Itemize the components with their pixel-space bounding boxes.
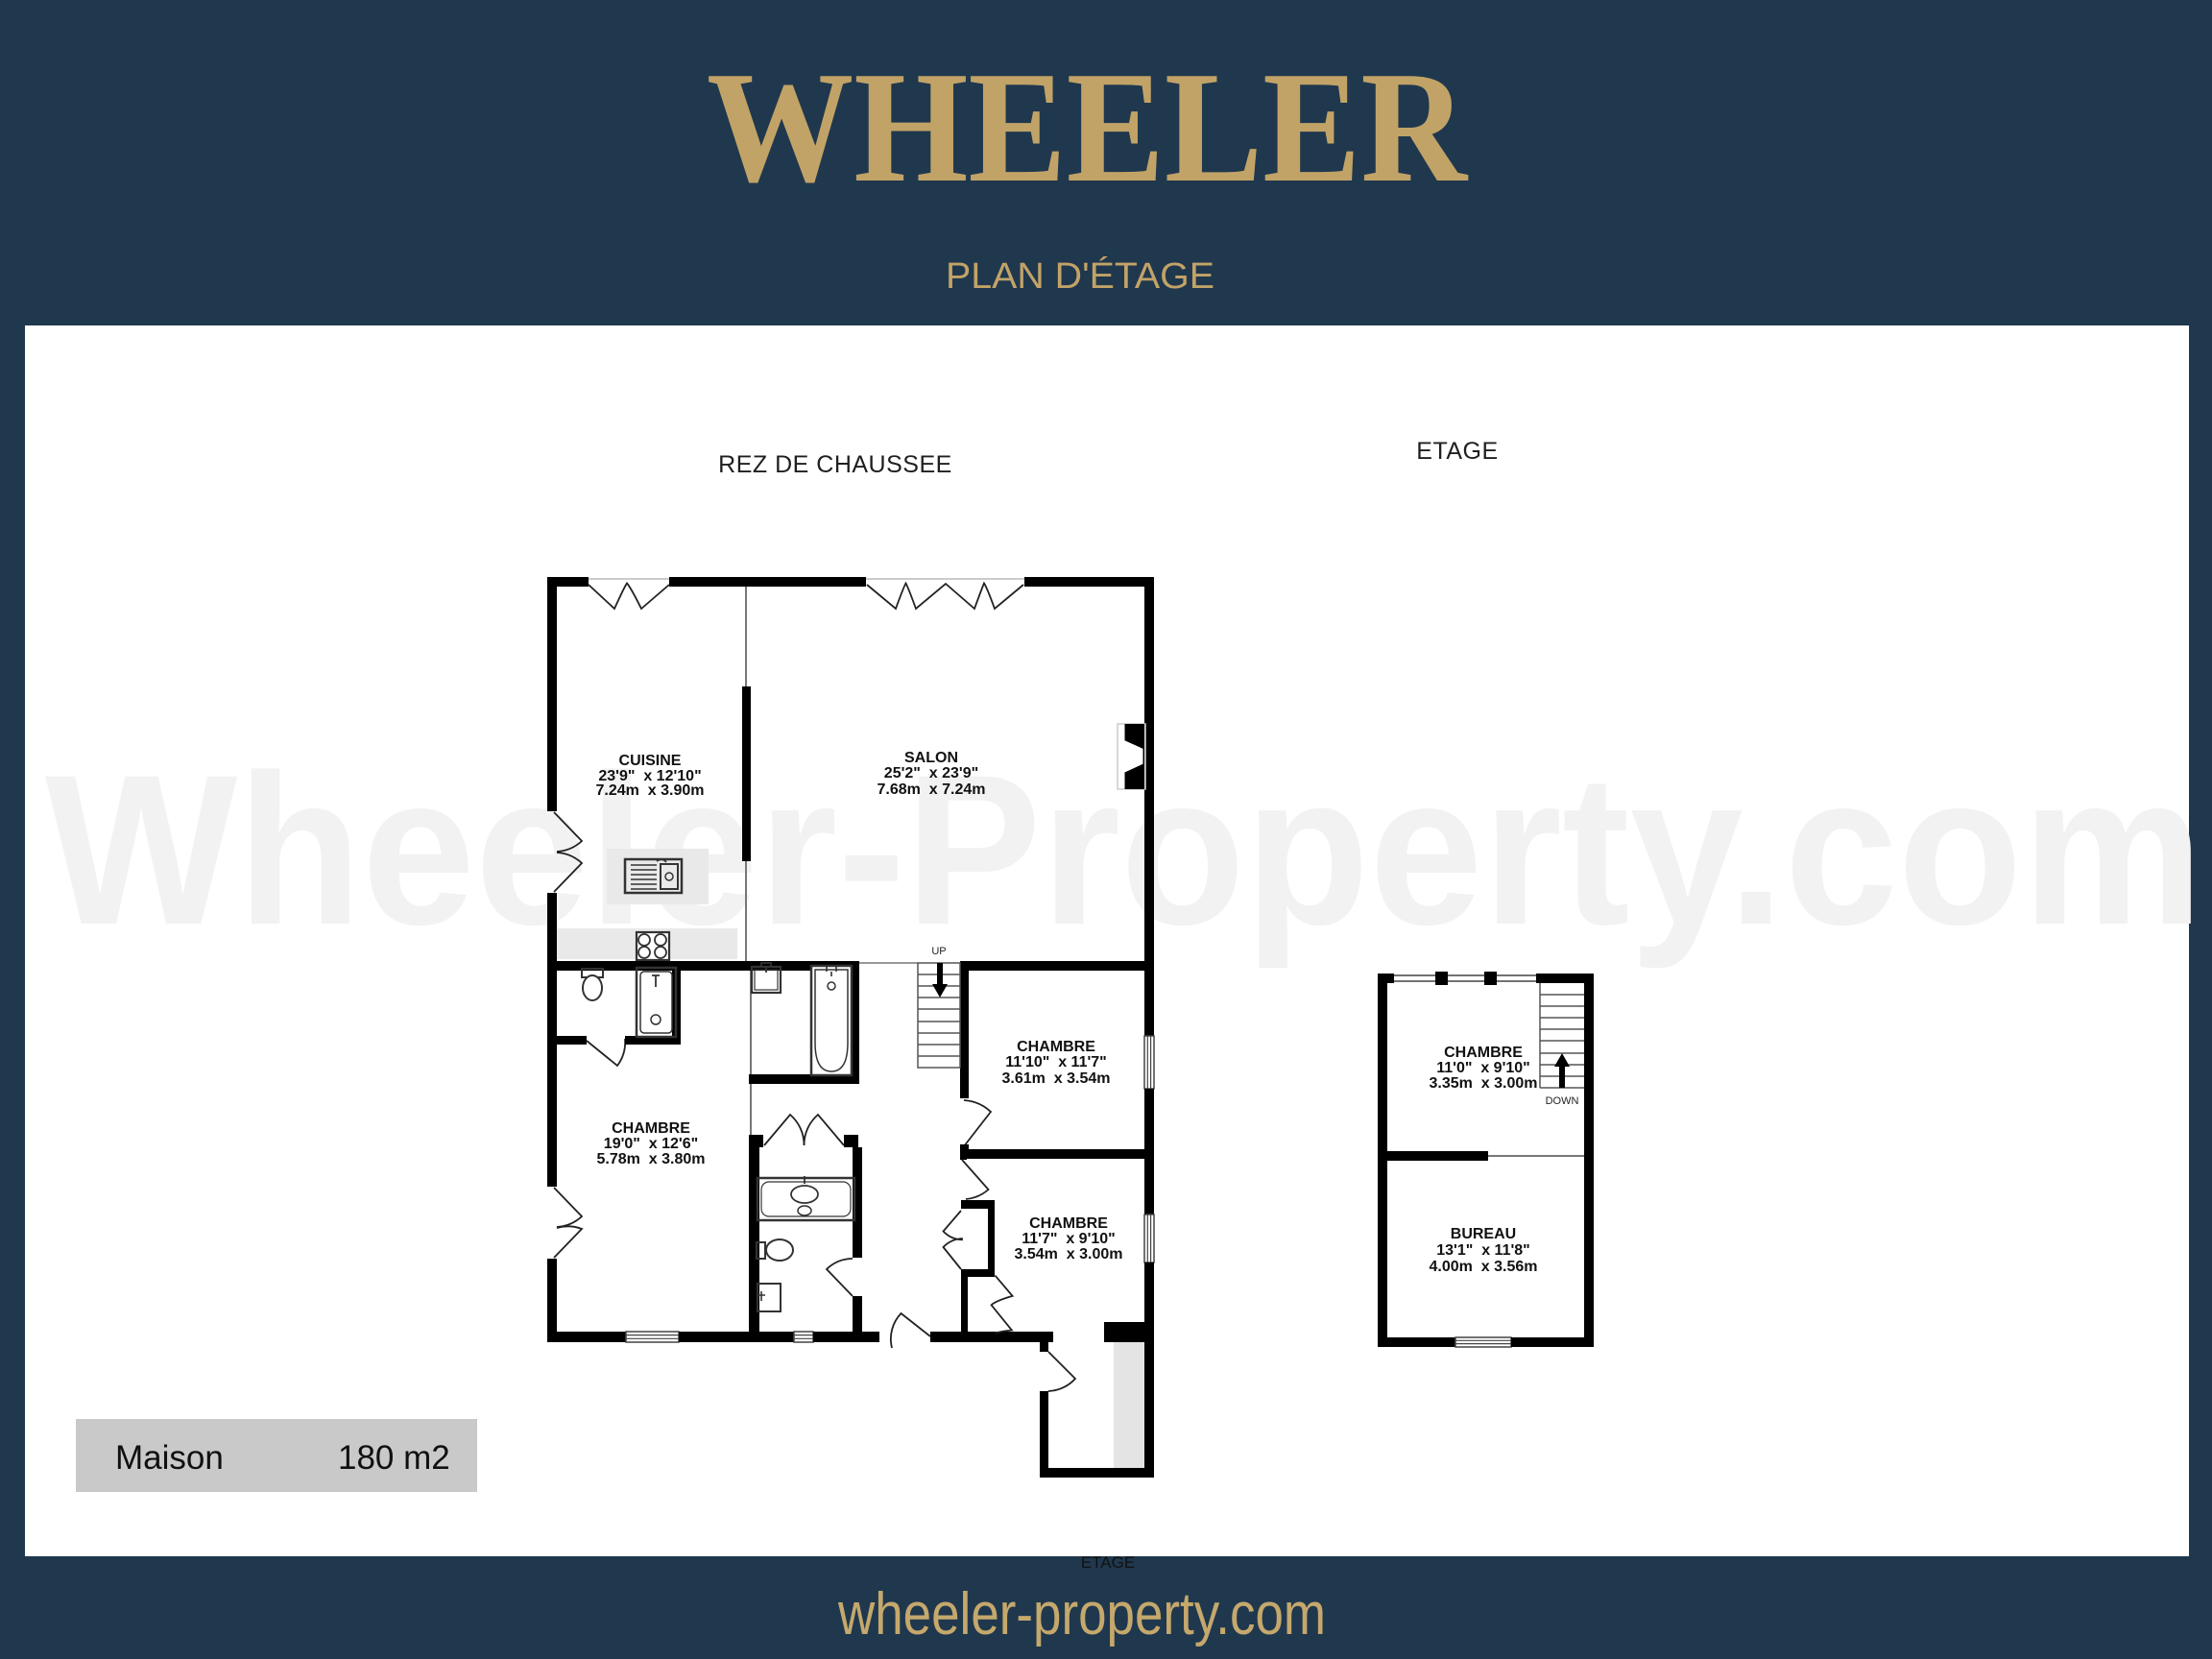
svg-text:BUREAU: BUREAU (1451, 1226, 1516, 1242)
svg-text:3.35m x 3.00m: 3.35m x 3.00m (1430, 1075, 1538, 1092)
svg-text:CHAMBRE: CHAMBRE (1444, 1045, 1523, 1061)
svg-text:ETAGE: ETAGE (1416, 438, 1498, 465)
svg-text:SALON: SALON (904, 750, 958, 766)
svg-text:11'10" x 11'7": 11'10" x 11'7" (1005, 1054, 1107, 1070)
svg-text:5.78m x 3.80m: 5.78m x 3.80m (597, 1151, 706, 1167)
svg-text:CHAMBRE: CHAMBRE (1029, 1215, 1108, 1232)
svg-text:CUISINE: CUISINE (619, 753, 682, 769)
svg-text:WHEELER: WHEELER (707, 38, 1469, 215)
svg-text:7.68m x 7.24m: 7.68m x 7.24m (878, 781, 986, 798)
svg-text:11'0" x 9'10": 11'0" x 9'10" (1436, 1060, 1530, 1076)
svg-text:CHAMBRE: CHAMBRE (612, 1120, 690, 1137)
svg-text:11'7" x 9'10": 11'7" x 9'10" (1022, 1231, 1116, 1247)
svg-text:7.24m x 3.90m: 7.24m x 3.90m (596, 782, 705, 799)
svg-text:4.00m x 3.56m: 4.00m x 3.56m (1430, 1259, 1538, 1275)
svg-text:13'1" x 11'8": 13'1" x 11'8" (1436, 1242, 1530, 1259)
svg-text:3.61m x 3.54m: 3.61m x 3.54m (1002, 1070, 1111, 1087)
svg-text:DOWN: DOWN (1546, 1095, 1579, 1107)
svg-text:3.54m x 3.00m: 3.54m x 3.00m (1015, 1246, 1123, 1262)
svg-text:19'0" x 12'6": 19'0" x 12'6" (604, 1136, 698, 1152)
svg-text:REZ DE CHAUSSEE: REZ DE CHAUSSEE (718, 451, 952, 478)
svg-text:25'2" x 23'9": 25'2" x 23'9" (884, 765, 978, 781)
svg-text:wheeler-property.com: wheeler-property.com (837, 1581, 1326, 1647)
svg-text:UP: UP (931, 946, 946, 957)
svg-text:PLAN D'ÉTAGE: PLAN D'ÉTAGE (946, 255, 1214, 297)
svg-text:ETAGE: ETAGE (1081, 1553, 1135, 1572)
svg-text:CHAMBRE: CHAMBRE (1017, 1039, 1095, 1055)
